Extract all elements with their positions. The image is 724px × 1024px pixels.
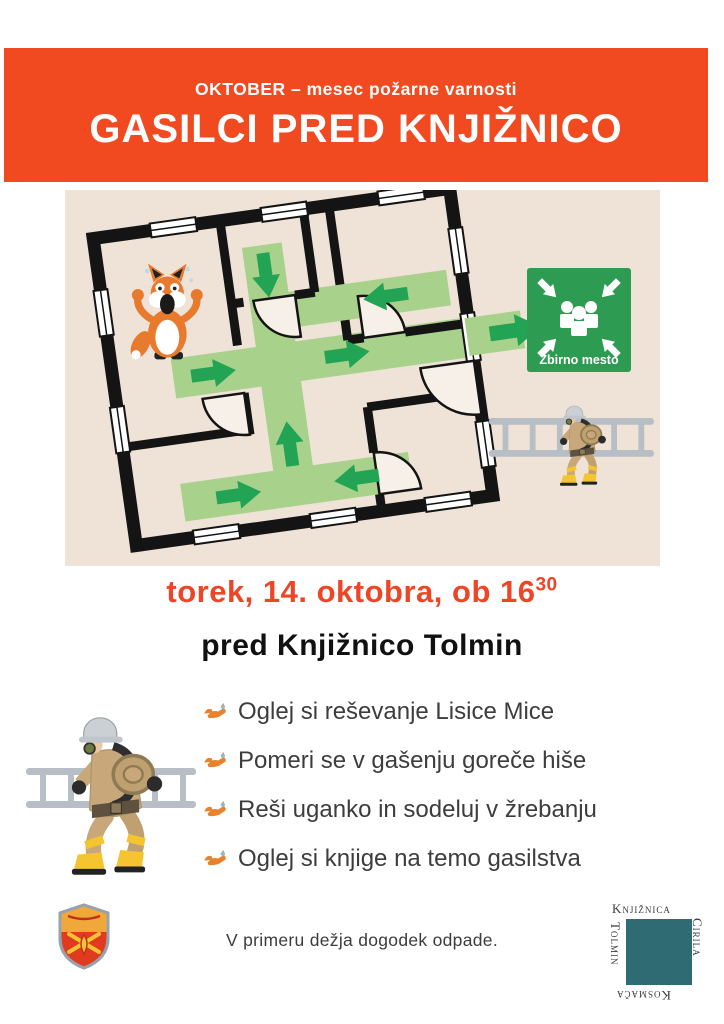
library-logo-word-right: Cirila [689, 918, 705, 980]
firefighter-large-icon [22, 704, 210, 888]
activity-text: Reši uganko in sodeluj v žrebanju [238, 796, 597, 824]
library-logo-word-left: Tolmin [607, 922, 623, 984]
activity-text: Oglej si knjige na temo gasilstva [238, 845, 581, 873]
banner-title: GASILCI PRED KNJIŽNICO [4, 107, 708, 152]
banner: OKTOBER – mesec požarne varnosti GASILCI… [4, 48, 708, 182]
activity-text: Oglej si reševanje Lisice Mice [238, 698, 554, 726]
library-logo-square [626, 919, 692, 985]
event-date-text: torek, 14. oktobra, ob 16 [166, 574, 535, 609]
banner-subtitle: OKTOBER – mesec požarne varnosti [4, 79, 708, 100]
assembly-point-sign: Zbirno mesto [527, 268, 631, 372]
event-date: torek, 14. oktobra, ob 1630 [0, 574, 724, 610]
evacuation-plan-illustration: Zbirno mesto [65, 190, 660, 566]
library-logo-word-top: Knjižnica [612, 901, 671, 917]
event-time-superscript: 30 [535, 575, 557, 596]
list-item: Reši uganko in sodeluj v žrebanju [203, 796, 597, 824]
list-item: Oglej si reševanje Lisice Mice [203, 698, 597, 726]
list-item: Pomeri se v gašenju goreče hiše [203, 747, 597, 775]
list-item: Oglej si knjige na temo gasilstva [203, 845, 597, 873]
activity-text: Pomeri se v gašenju goreče hiše [238, 747, 586, 775]
assembly-sign-label: Zbirno mesto [539, 353, 619, 367]
poster: OKTOBER – mesec požarne varnosti GASILCI… [0, 0, 724, 1024]
event-location: pred Knjižnico Tolmin [0, 629, 724, 663]
library-logo: Knjižnica Cirila Kosmača Tolmin [606, 893, 710, 1009]
activities-list: Oglej si reševanje Lisice Mice Pomeri se… [203, 698, 597, 873]
library-logo-word-bottom: Kosmača [616, 987, 692, 1003]
